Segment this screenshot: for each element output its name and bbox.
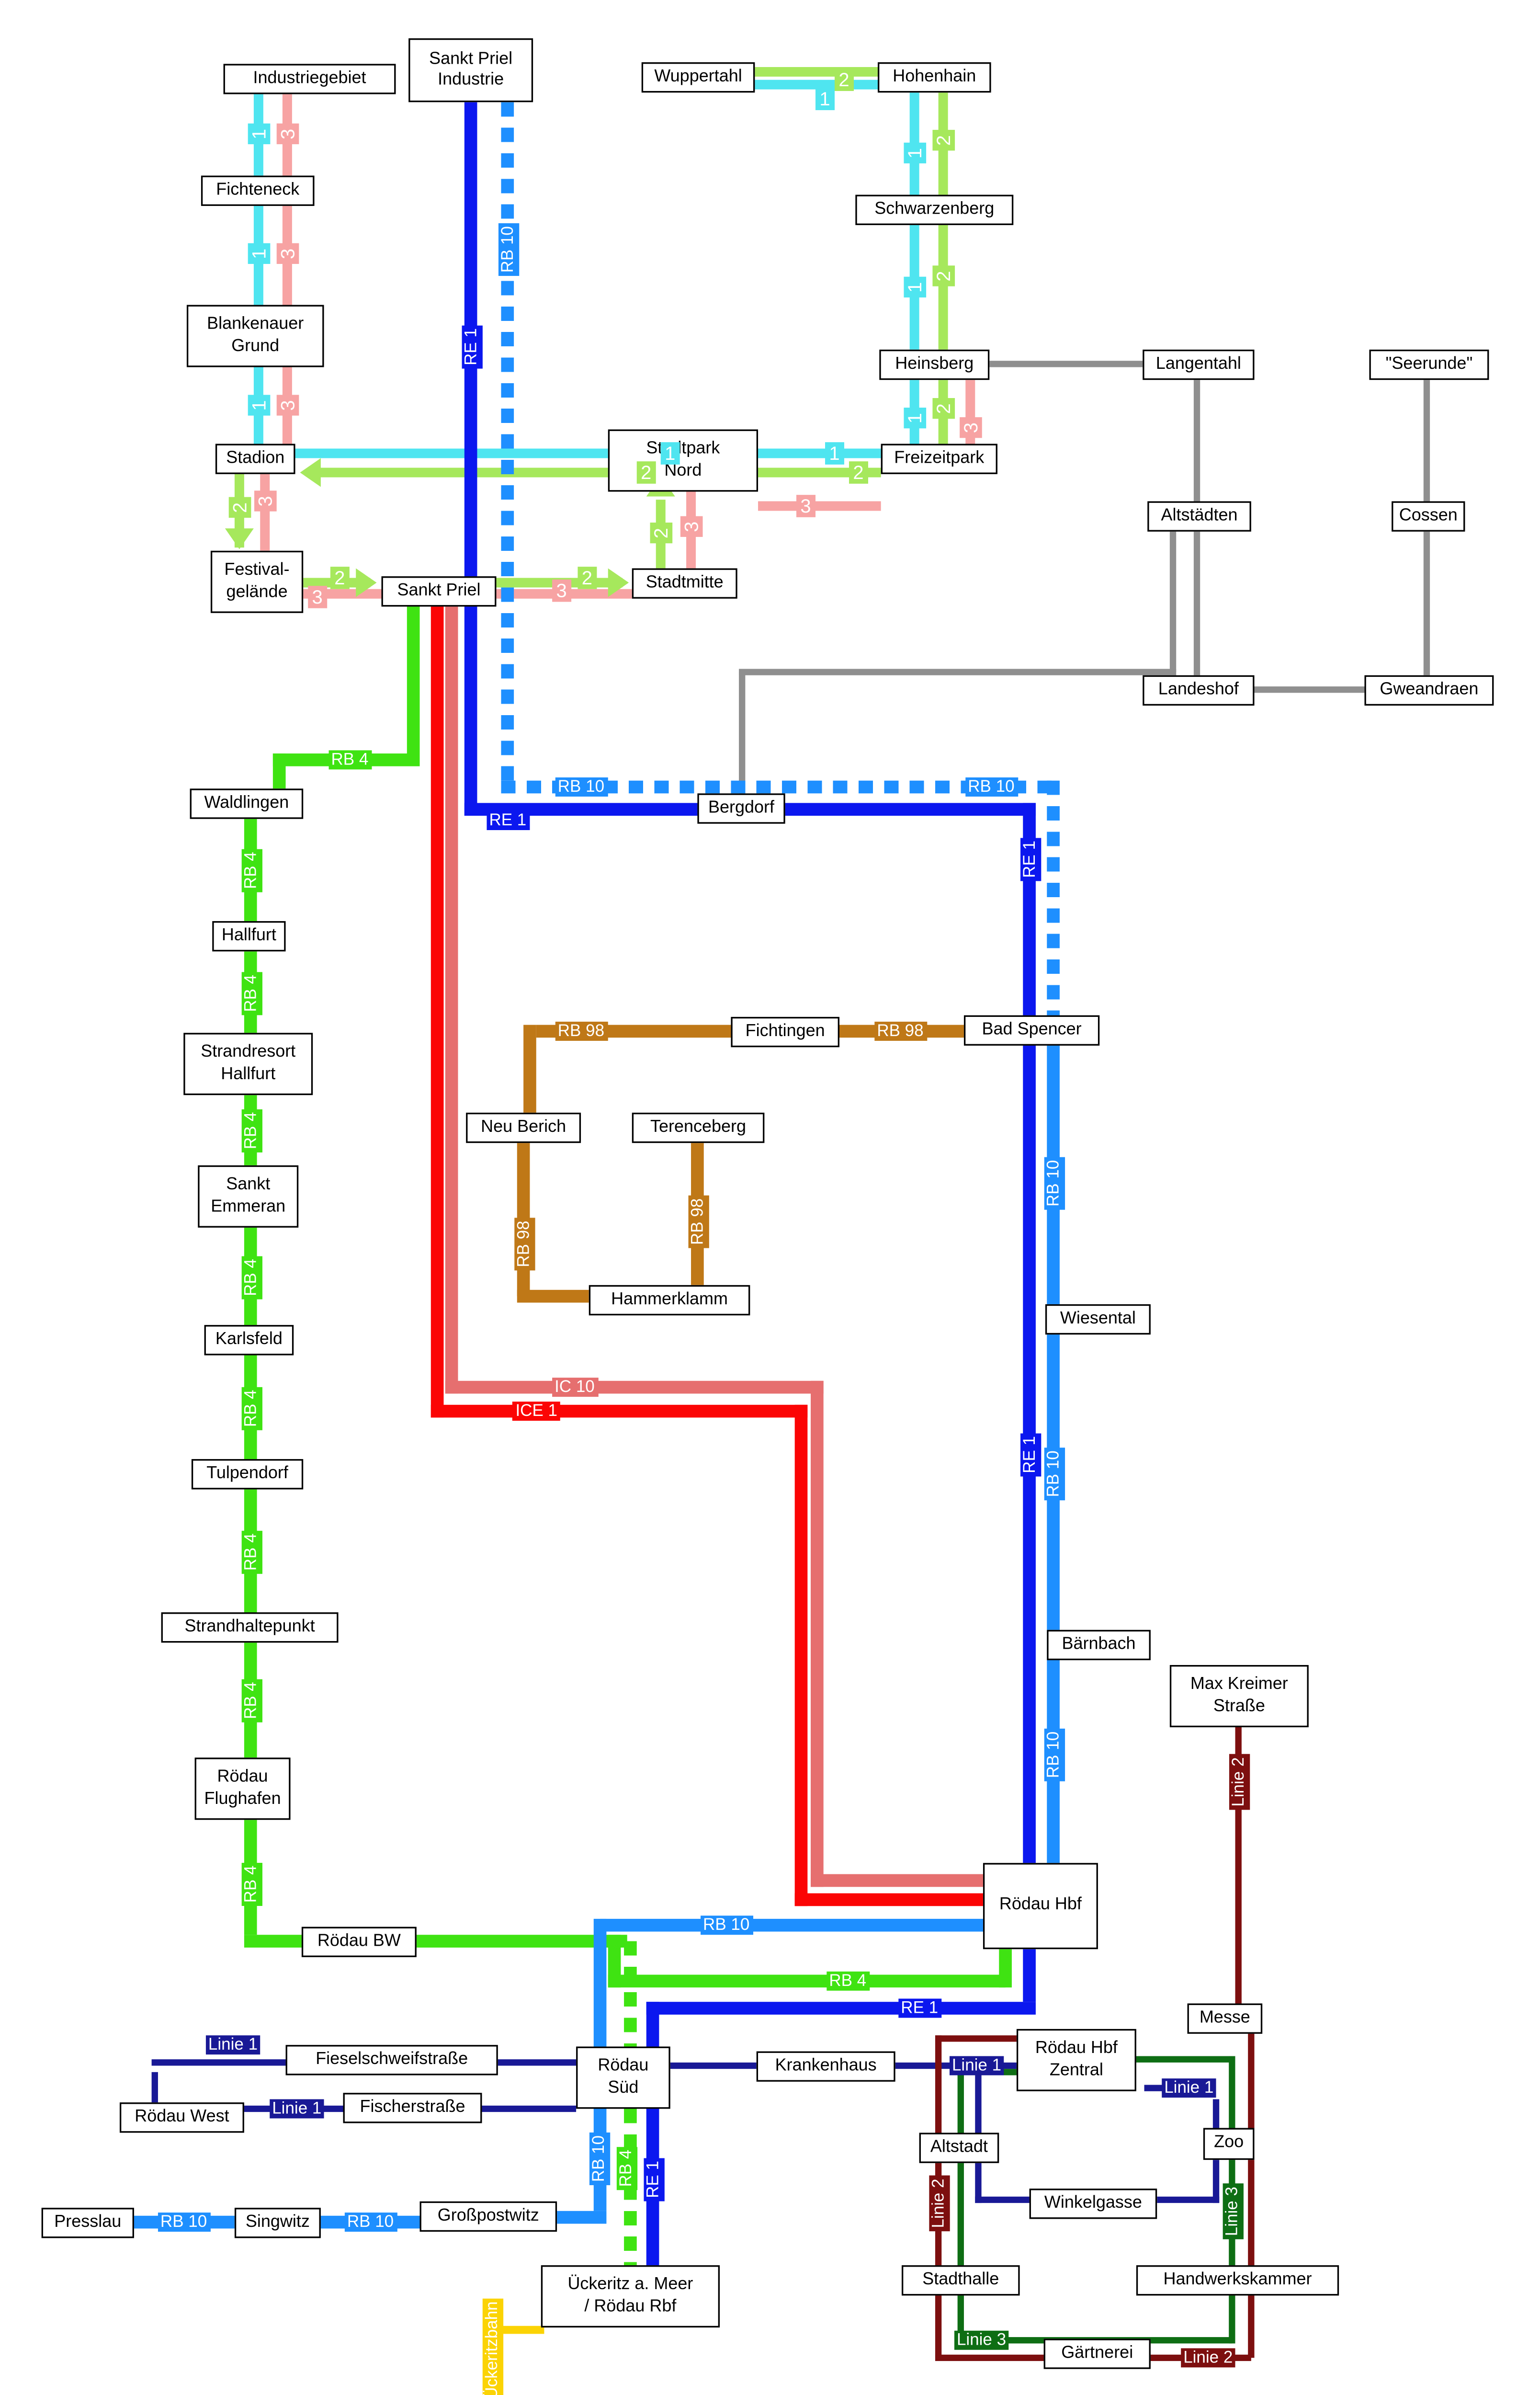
linie2-line-segment bbox=[935, 2035, 1016, 2042]
rb10-line-segment bbox=[501, 102, 514, 780]
station-label: Hammerklamm bbox=[611, 1289, 728, 1311]
linie3-route-chip: Linie 3 bbox=[953, 2330, 1009, 2350]
ice1-line-segment bbox=[431, 1405, 808, 1418]
station-label: Hallfurt bbox=[222, 925, 276, 947]
station-landeshof[interactable]: Landeshof bbox=[1143, 675, 1254, 706]
rb10-route-chip: RB 10 bbox=[1043, 1447, 1064, 1500]
rb4-line-segment bbox=[624, 1941, 637, 2047]
rb4-line-segment bbox=[273, 753, 286, 788]
rb4-route-chip: RB 4 bbox=[241, 1678, 261, 1722]
rb4-route-chip: RB 4 bbox=[241, 1386, 261, 1429]
station-altstadt[interactable]: Altstadt bbox=[919, 2133, 999, 2163]
rb98-line-segment bbox=[523, 1025, 536, 1113]
direction-arrow-right-icon bbox=[356, 568, 376, 597]
linie1-line-segment bbox=[974, 2196, 1029, 2203]
station-label: Schwarzenberg bbox=[874, 199, 994, 221]
station-baernbach[interactable]: Bärnbach bbox=[1047, 1630, 1151, 1660]
rb4-route-chip: RB 4 bbox=[241, 971, 261, 1015]
station-hammerklamm[interactable]: Hammerklamm bbox=[589, 1285, 750, 1315]
line2-line-segment bbox=[939, 225, 947, 350]
station-label: Hallfurt bbox=[221, 1064, 275, 1085]
station-label: Industriegebiet bbox=[253, 68, 366, 90]
line3-line-segment bbox=[260, 474, 269, 551]
rb98-route-chip: RB 98 bbox=[874, 1021, 927, 1041]
station-fichteneck[interactable]: Fichteneck bbox=[201, 176, 315, 206]
line1-route-chip: 1 bbox=[247, 395, 270, 415]
station-roedau-hbf[interactable]: Rödau Hbf bbox=[983, 1863, 1098, 1949]
station-bergdorf[interactable]: Bergdorf bbox=[697, 793, 785, 823]
transit-map-canvas: IndustriegebietSankt PrielIndustrieWuppe… bbox=[0, 0, 1540, 2395]
line3-route-chip: 3 bbox=[551, 580, 571, 602]
station-stadion[interactable]: Stadion bbox=[215, 444, 295, 474]
station-label: Rödau bbox=[598, 2056, 648, 2078]
station-fischerstrasse[interactable]: Fischerstraße bbox=[343, 2093, 482, 2123]
rb4-route-chip: RB 4 bbox=[328, 750, 372, 770]
linie3-route-chip: Linie 3 bbox=[1222, 2183, 1242, 2238]
rb4-route-chip: RB 4 bbox=[241, 1255, 261, 1299]
station-roedau-flughafen[interactable]: RödauFlughafen bbox=[195, 1757, 291, 1820]
linie2-line-segment bbox=[1247, 2034, 1255, 2358]
gray-line-segment bbox=[1255, 686, 1365, 693]
line2-route-chip: 2 bbox=[228, 498, 250, 518]
station-fieselschweifstrasse[interactable]: Fieselschweifstraße bbox=[286, 2045, 498, 2075]
station-label: Sankt bbox=[226, 1175, 270, 1197]
gray-line-segment bbox=[1423, 532, 1430, 675]
rb4-route-chip: RB 4 bbox=[826, 1971, 870, 1991]
linie2-route-chip: Linie 2 bbox=[929, 2175, 949, 2230]
ic10-line-segment bbox=[811, 1874, 983, 1887]
ice1-line-segment bbox=[795, 1893, 983, 1906]
station-label: Singwitz bbox=[246, 2212, 310, 2234]
line2-route-chip: 2 bbox=[834, 68, 854, 91]
station-label: Blankenauer bbox=[207, 315, 304, 336]
station-sankt-priel-industrie[interactable]: Sankt PrielIndustrie bbox=[408, 38, 533, 102]
re1-line-segment bbox=[646, 2002, 659, 2046]
station-terenceberg[interactable]: Terenceberg bbox=[632, 1113, 765, 1143]
station-label: Großpostwitz bbox=[438, 2206, 539, 2227]
line2-route-chip: 2 bbox=[932, 130, 954, 150]
line2-route-chip: 2 bbox=[649, 523, 672, 543]
direction-arrow-down-icon bbox=[225, 528, 254, 549]
rb10-route-chip: RB 10 bbox=[498, 222, 518, 275]
station-krankenhaus[interactable]: Krankenhaus bbox=[757, 2052, 895, 2082]
line3-route-chip: 3 bbox=[795, 495, 815, 517]
station-schwarzenberg[interactable]: Schwarzenberg bbox=[855, 195, 1013, 225]
station-sankt-emmeran[interactable]: SanktEmmeran bbox=[198, 1165, 298, 1228]
rb10-line-segment bbox=[1047, 781, 1060, 1015]
station-label: Cossen bbox=[1399, 506, 1458, 527]
linie1-line-segment bbox=[1157, 2196, 1219, 2203]
linie3-line-segment bbox=[1136, 2055, 1232, 2063]
station-label: Krankenhaus bbox=[775, 2056, 877, 2077]
re1-route-chip: RE 1 bbox=[1019, 1432, 1040, 1476]
station-label: Stadtmitte bbox=[646, 573, 724, 594]
station-blankenauer-grund[interactable]: BlankenauerGrund bbox=[187, 305, 324, 367]
station-label: Freizeitpark bbox=[894, 448, 984, 470]
linie1-line-segment bbox=[1212, 2160, 1220, 2203]
line1-line-segment bbox=[292, 449, 608, 457]
station-grosspostwitz[interactable]: Großpostwitz bbox=[420, 2201, 557, 2232]
station-freizeitpark[interactable]: Freizeitpark bbox=[881, 444, 997, 474]
rb10-route-chip: RB 10 bbox=[344, 2212, 397, 2232]
line2-route-chip: 2 bbox=[329, 567, 350, 589]
station-label: Altstadt bbox=[930, 2137, 988, 2159]
station-label: Fieselschweifstraße bbox=[316, 2049, 468, 2071]
line2-line-segment bbox=[755, 68, 878, 76]
re1-line-segment bbox=[464, 102, 477, 816]
station-sankt-priel[interactable]: Sankt Priel bbox=[382, 576, 497, 606]
linie1-route-chip: Linie 1 bbox=[205, 2035, 260, 2055]
station-label: Messe bbox=[1200, 2008, 1250, 2030]
station-label: Fichteneck bbox=[216, 180, 299, 202]
station-label: Gärtnerei bbox=[1061, 2343, 1133, 2365]
station-seerunde[interactable]: "Seerunde" bbox=[1369, 350, 1489, 380]
station-label: Neu Berich bbox=[481, 1117, 566, 1139]
station-roedau-bw[interactable]: Rödau BW bbox=[302, 1927, 417, 1957]
station-neu-berich[interactable]: Neu Berich bbox=[466, 1113, 581, 1143]
station-langentahl[interactable]: Langentahl bbox=[1143, 350, 1254, 380]
station-winkelgasse[interactable]: Winkelgasse bbox=[1030, 2189, 1157, 2219]
station-roedau-west[interactable]: Rödau West bbox=[120, 2102, 244, 2133]
rb4-line-segment bbox=[608, 1975, 1006, 1988]
direction-arrow-left-icon bbox=[300, 458, 321, 487]
re1-line-segment bbox=[1023, 803, 1036, 1863]
station-wuppertahl[interactable]: Wuppertahl bbox=[642, 62, 755, 92]
line3-route-chip: 3 bbox=[959, 418, 981, 438]
station-label: / Rödau Rbf bbox=[584, 2296, 676, 2318]
station-label: Stadthalle bbox=[922, 2270, 999, 2291]
station-karlsfeld[interactable]: Karlsfeld bbox=[204, 1325, 294, 1355]
rb10-line-segment bbox=[594, 1919, 607, 2047]
station-tulpendorf[interactable]: Tulpendorf bbox=[192, 1459, 303, 1489]
station-label: Wuppertahl bbox=[654, 67, 742, 88]
rb98-route-chip: RB 98 bbox=[514, 1217, 534, 1270]
station-label: Wiesental bbox=[1060, 1309, 1136, 1330]
station-label: Landeshof bbox=[1158, 680, 1239, 701]
line1-route-chip: 1 bbox=[903, 408, 926, 428]
line3-route-chip: 3 bbox=[276, 395, 298, 415]
station-label: Sankt Priel bbox=[397, 581, 480, 602]
station-bad-spencer[interactable]: Bad Spencer bbox=[964, 1015, 1099, 1046]
linie1-route-chip: Linie 1 bbox=[1161, 2078, 1217, 2098]
rb10-line-segment bbox=[557, 2211, 606, 2224]
station-label: Festival- bbox=[225, 560, 290, 582]
station-label: Flughafen bbox=[204, 1789, 281, 1810]
station-label: Heinsberg bbox=[895, 354, 974, 376]
station-handwerkskammer[interactable]: Handwerkskammer bbox=[1136, 2265, 1339, 2295]
rb10-route-chip: RB 10 bbox=[1043, 1728, 1064, 1781]
gray-line-segment bbox=[1169, 532, 1177, 672]
station-label: Rödau bbox=[217, 1767, 268, 1789]
linie1-line-segment bbox=[482, 2105, 576, 2112]
rb98-line-segment bbox=[517, 1290, 589, 1303]
station-label: Emmeran bbox=[211, 1197, 285, 1218]
line3-route-chip: 3 bbox=[253, 491, 276, 511]
station-stadthalle[interactable]: Stadthalle bbox=[902, 2265, 1020, 2295]
station-ueckeritz-a-meer-roedau-rbf[interactable]: Ückeritz a. Meer/ Rödau Rbf bbox=[541, 2265, 720, 2327]
gray-line-segment bbox=[1193, 380, 1200, 501]
line2-route-chip: 2 bbox=[932, 266, 954, 286]
station-label: Stadion bbox=[226, 448, 284, 470]
station-label: Tulpendorf bbox=[206, 1463, 288, 1485]
re1-line-segment bbox=[1023, 1949, 1036, 2002]
linie3-line-segment bbox=[957, 2068, 964, 2340]
station-gaertnerei[interactable]: Gärtnerei bbox=[1044, 2338, 1151, 2369]
rb98-route-chip: RB 98 bbox=[555, 1021, 608, 1041]
line1-route-chip: 1 bbox=[247, 124, 270, 144]
line3-route-chip: 3 bbox=[276, 244, 298, 264]
linie1-line-segment bbox=[1212, 2099, 1220, 2128]
linie1-line-segment bbox=[151, 2072, 159, 2102]
station-label: Stadtpark bbox=[646, 439, 720, 461]
gray-line-segment bbox=[989, 360, 1143, 367]
line2-route-chip: 2 bbox=[932, 399, 954, 419]
rb10-route-chip: RB 10 bbox=[589, 2132, 609, 2185]
linie1-route-chip: Linie 1 bbox=[949, 2055, 1004, 2076]
station-gweandraen[interactable]: Gweandraen bbox=[1364, 675, 1494, 706]
station-label: Fischerstraße bbox=[360, 2097, 465, 2119]
station-label: Rödau Hbf bbox=[999, 1895, 1082, 1917]
rb10-route-chip: RB 10 bbox=[1043, 1156, 1064, 1209]
rb4-route-chip: RB 4 bbox=[241, 848, 261, 891]
station-label: Waldlingen bbox=[204, 793, 289, 815]
line1-route-chip: 1 bbox=[903, 143, 926, 163]
station-label: Hohenhain bbox=[893, 67, 976, 88]
line1-route-chip: 1 bbox=[824, 442, 844, 465]
line1-route-chip: 1 bbox=[903, 277, 926, 297]
rb4-route-chip: RB 4 bbox=[241, 1529, 261, 1573]
gray-line-segment bbox=[738, 672, 746, 793]
station-label: Gweandraen bbox=[1380, 680, 1478, 701]
station-wiesental[interactable]: Wiesental bbox=[1045, 1304, 1151, 1334]
station-zoo[interactable]: Zoo bbox=[1203, 2128, 1255, 2160]
station-presslau[interactable]: Presslau bbox=[42, 2208, 134, 2238]
line1-route-chip: 1 bbox=[247, 244, 270, 264]
station-heinsberg[interactable]: Heinsberg bbox=[879, 350, 989, 380]
station-label: Zoo bbox=[1214, 2133, 1244, 2155]
station-max-kreimer-strasse[interactable]: Max KreimerStraße bbox=[1170, 1665, 1309, 1727]
station-label: Altstädten bbox=[1161, 506, 1237, 527]
station-label: Presslau bbox=[54, 2212, 121, 2234]
re1-route-chip: RE 1 bbox=[461, 324, 481, 368]
re1-route-chip: RE 1 bbox=[1019, 837, 1040, 880]
station-label: Straße bbox=[1213, 1696, 1265, 1718]
line2-route-chip: 2 bbox=[636, 461, 656, 484]
station-strandresort-hallfurt[interactable]: StrandresortHallfurt bbox=[183, 1033, 313, 1095]
linie1-line-segment bbox=[151, 2059, 286, 2066]
rb10-route-chip: RB 10 bbox=[965, 776, 1018, 797]
line2-line-segment bbox=[313, 468, 608, 477]
linie1-line-segment bbox=[974, 2062, 982, 2202]
line3-route-chip: 3 bbox=[679, 517, 702, 537]
rb10-route-chip: RB 10 bbox=[555, 776, 608, 797]
linie1-route-chip: Linie 1 bbox=[269, 2098, 325, 2119]
rb98-route-chip: RB 98 bbox=[688, 1194, 708, 1247]
station-messe[interactable]: Messe bbox=[1188, 2004, 1263, 2034]
station-label: Winkelgasse bbox=[1044, 2193, 1142, 2214]
station-industriegebiet[interactable]: Industriegebiet bbox=[224, 64, 396, 94]
station-label: Rödau West bbox=[135, 2107, 229, 2128]
station-label: Sankt Priel bbox=[429, 49, 512, 70]
station-label: Langentahl bbox=[1156, 354, 1241, 376]
line1-route-chip: 1 bbox=[660, 442, 680, 465]
gray-line-segment bbox=[738, 668, 1176, 675]
station-label: Grund bbox=[231, 336, 279, 358]
station-label: Industrie bbox=[438, 70, 504, 92]
line2-route-chip: 2 bbox=[577, 567, 597, 589]
line1-route-chip: 1 bbox=[815, 88, 835, 110]
ueck-route-chip: Ückeritzbahn bbox=[482, 2297, 502, 2395]
rb4-line-segment bbox=[999, 1949, 1012, 1987]
station-label: Strandresort bbox=[201, 1042, 295, 1064]
re1-line-segment bbox=[646, 2002, 1036, 2015]
ic10-route-chip: IC 10 bbox=[551, 1377, 598, 1397]
station-festivalgelaende[interactable]: Festival-gelände bbox=[211, 551, 303, 613]
station-fichtingen[interactable]: Fichtingen bbox=[731, 1017, 839, 1047]
line2-route-chip: 2 bbox=[848, 461, 868, 484]
line1-line-segment bbox=[758, 449, 881, 457]
station-label: "Seerunde" bbox=[1386, 354, 1473, 376]
rb4-route-chip: RB 4 bbox=[241, 1108, 261, 1152]
station-label: Bärnbach bbox=[1062, 1634, 1135, 1656]
station-label: Süd bbox=[608, 2078, 638, 2099]
re1-route-chip: RE 1 bbox=[643, 2157, 663, 2201]
station-label: Max Kreimer bbox=[1190, 1675, 1288, 1696]
ic10-line-segment bbox=[811, 1381, 824, 1887]
station-cossen[interactable]: Cossen bbox=[1392, 501, 1465, 531]
rb4-route-chip: RB 4 bbox=[241, 1861, 261, 1905]
station-label: Rödau Hbf bbox=[1035, 2039, 1118, 2060]
linie2-route-chip: Linie 2 bbox=[1180, 2348, 1236, 2368]
gray-line-segment bbox=[1423, 380, 1430, 501]
station-waldlingen[interactable]: Waldlingen bbox=[190, 788, 304, 819]
station-label: Zentral bbox=[1050, 2060, 1103, 2082]
station-hohenhain[interactable]: Hohenhain bbox=[878, 62, 991, 92]
ic10-line-segment bbox=[445, 606, 458, 1393]
station-label: Bad Spencer bbox=[982, 1020, 1082, 1041]
direction-arrow-right-icon bbox=[608, 568, 629, 597]
station-label: Ückeritz a. Meer bbox=[567, 2275, 693, 2296]
rb10-route-chip: RB 10 bbox=[157, 2212, 210, 2232]
station-label: Bergdorf bbox=[708, 798, 774, 820]
ic10-line-segment bbox=[445, 1381, 824, 1394]
station-label: Handwerkskammer bbox=[1164, 2270, 1312, 2291]
rb4-line-segment bbox=[407, 606, 420, 760]
gray-line-segment bbox=[1193, 532, 1200, 675]
ice1-line-segment bbox=[431, 606, 444, 1417]
station-singwitz[interactable]: Singwitz bbox=[235, 2208, 321, 2238]
line3-route-chip: 3 bbox=[307, 586, 328, 608]
re1-route-chip: RE 1 bbox=[486, 810, 530, 830]
station-stadtpark-nord[interactable]: StadtparkNord bbox=[608, 429, 758, 491]
rb4-route-chip: RB 4 bbox=[616, 2145, 636, 2189]
linie1-line-segment bbox=[498, 2059, 576, 2066]
station-label: Fichtingen bbox=[746, 1021, 825, 1043]
station-strandhaltepunkt[interactable]: Strandhaltepunkt bbox=[161, 1612, 339, 1642]
station-hallfurt[interactable]: Hallfurt bbox=[212, 921, 285, 951]
line3-route-chip: 3 bbox=[276, 124, 298, 144]
station-roedau-hbf-zentral[interactable]: Rödau HbfZentral bbox=[1017, 2029, 1136, 2091]
ice1-line-segment bbox=[795, 1405, 808, 1906]
rb10-line-segment bbox=[600, 1919, 983, 1932]
linie1-line-segment bbox=[670, 2062, 757, 2069]
linie2-route-chip: Linie 2 bbox=[1228, 1753, 1248, 1809]
ice1-route-chip: ICE 1 bbox=[512, 1401, 561, 1421]
station-label: gelände bbox=[226, 582, 288, 604]
rb10-route-chip: RB 10 bbox=[700, 1915, 753, 1935]
station-label: Karlsfeld bbox=[215, 1329, 283, 1351]
re1-route-chip: RE 1 bbox=[898, 1998, 941, 2018]
station-label: Strandhaltepunkt bbox=[184, 1617, 315, 1638]
station-stadtmitte[interactable]: Stadtmitte bbox=[632, 568, 737, 598]
station-label: Rödau BW bbox=[317, 1931, 401, 1953]
line3-line-segment bbox=[758, 502, 881, 510]
station-altstaedten[interactable]: Altstädten bbox=[1147, 501, 1251, 531]
station-label: Terenceberg bbox=[650, 1117, 746, 1139]
station-roedau-sued[interactable]: RödauSüd bbox=[576, 2047, 670, 2109]
